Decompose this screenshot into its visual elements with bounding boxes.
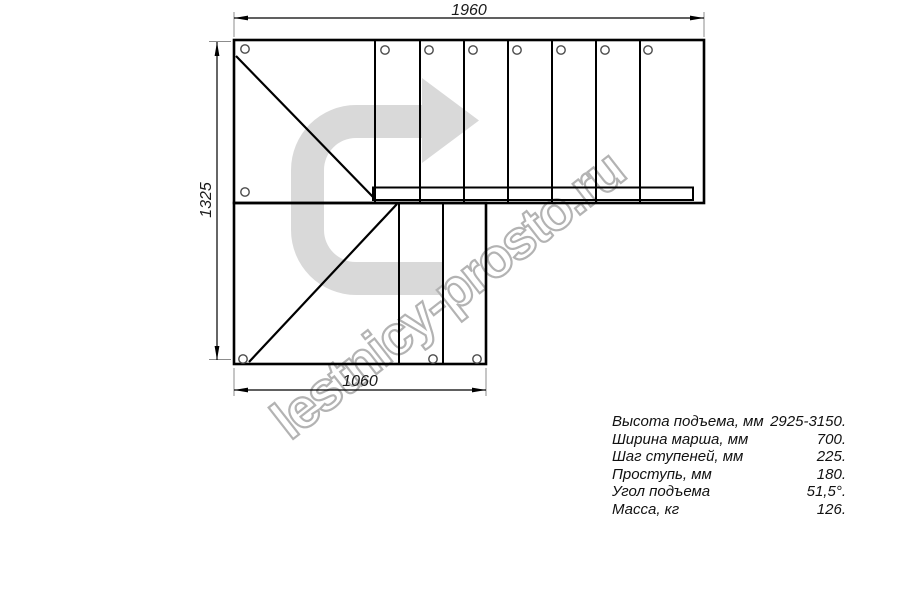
mount-hole (429, 355, 437, 363)
dim-arrow (690, 16, 704, 21)
spec-label: Ширина марша, мм (612, 431, 748, 449)
spec-row: Высота подъема, мм 2925-3150. (612, 413, 846, 431)
mount-hole (473, 355, 481, 363)
spec-value: 2925-3150. (770, 413, 846, 431)
mount-hole (513, 46, 521, 54)
mount-hole (557, 46, 565, 54)
specs-table: Высота подъема, мм 2925-3150. Ширина мар… (612, 413, 846, 518)
spec-label: Масса, кг (612, 501, 679, 519)
dim-arrow (234, 388, 248, 393)
mount-hole (239, 355, 247, 363)
spec-label: Угол подъема (612, 483, 710, 501)
dim-arrow (472, 388, 486, 393)
spec-row: Шаг ступеней, мм 225. (612, 448, 846, 466)
dim-text-left: 1325 (198, 182, 215, 218)
dim-text-top: 1960 (451, 2, 487, 19)
mount-hole (425, 46, 433, 54)
spec-value: 180. (817, 466, 846, 484)
spec-value: 126. (817, 501, 846, 519)
spec-label: Проступь, мм (612, 466, 712, 484)
dimension-left: 1325 (198, 42, 231, 361)
mount-hole (241, 188, 249, 196)
spec-value: 51,5°. (807, 483, 846, 501)
spec-row: Проступь, мм 180. (612, 466, 846, 484)
mount-hole (644, 46, 652, 54)
mount-hole (469, 46, 477, 54)
spec-value: 225. (817, 448, 846, 466)
spec-value: 700. (817, 431, 846, 449)
spec-label: Высота подъема, мм (612, 413, 764, 431)
dim-arrow (215, 42, 220, 56)
stair-plan-screenshot: lestnicy-prosto.ru (0, 0, 900, 600)
spec-row: Ширина марша, мм 700. (612, 431, 846, 449)
mount-hole (241, 45, 249, 53)
mount-hole (601, 46, 609, 54)
dimension-top: 1960 (234, 2, 704, 37)
dim-text-bottom: 1060 (342, 373, 378, 390)
spec-row: Масса, кг 126. (612, 501, 846, 519)
spec-label: Шаг ступеней, мм (612, 448, 743, 466)
dim-arrow (215, 346, 220, 360)
spec-row: Угол подъема 51,5°. (612, 483, 846, 501)
dim-arrow (234, 16, 248, 21)
mount-hole (381, 46, 389, 54)
